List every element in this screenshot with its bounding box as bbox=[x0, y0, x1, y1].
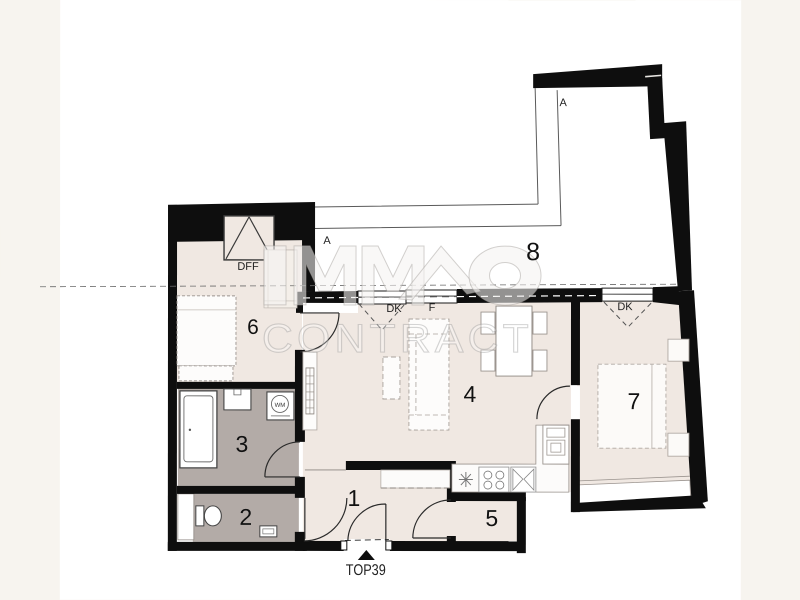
svg-text:F: F bbox=[429, 302, 436, 314]
svg-text:DFF: DFF bbox=[237, 261, 259, 273]
svg-text:4: 4 bbox=[464, 381, 477, 407]
svg-text:WM: WM bbox=[275, 402, 286, 409]
svg-text:3: 3 bbox=[235, 431, 248, 457]
svg-text:A: A bbox=[559, 97, 567, 109]
svg-text:7: 7 bbox=[628, 388, 641, 414]
svg-text:DK: DK bbox=[617, 301, 633, 313]
svg-text:6: 6 bbox=[247, 316, 259, 339]
svg-text:2: 2 bbox=[239, 504, 252, 530]
svg-text:TOP39: TOP39 bbox=[346, 562, 386, 579]
svg-text:DK: DK bbox=[386, 303, 402, 315]
svg-text:1: 1 bbox=[347, 485, 360, 511]
svg-text:CONTRACT: CONTRACT bbox=[262, 317, 533, 361]
svg-text:8: 8 bbox=[526, 238, 540, 266]
svg-text:A: A bbox=[323, 235, 331, 247]
svg-text:5: 5 bbox=[485, 505, 498, 531]
